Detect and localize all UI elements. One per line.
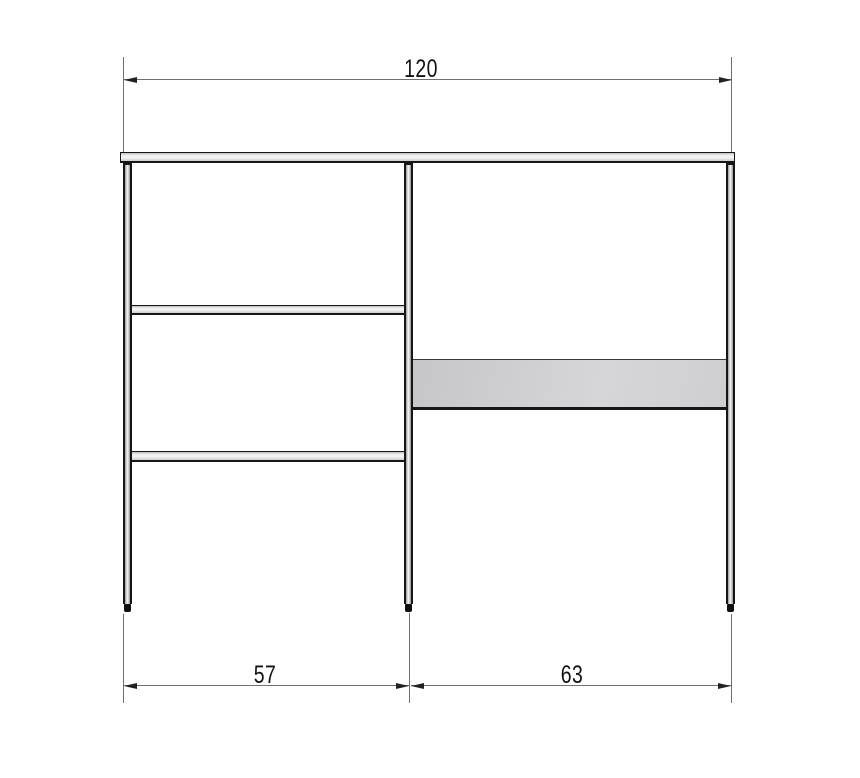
foot-middle — [405, 604, 412, 612]
extension-line-bottom-middle — [409, 613, 410, 703]
left-bay-lower-crossbar — [131, 451, 405, 462]
right-bay-panel — [413, 359, 726, 410]
arrowhead-right-icon — [718, 683, 731, 689]
dimension-label-overall-width: 120 — [374, 59, 468, 79]
arrowhead-left-icon — [411, 683, 424, 689]
arrowhead-left-icon — [124, 683, 137, 689]
left-bay-upper-crossbar — [131, 305, 405, 315]
dimension-label-right-bay: 63 — [525, 665, 619, 685]
extension-line-top-right — [731, 57, 732, 152]
dimension-label-left-bay: 57 — [218, 665, 312, 685]
foot-left — [124, 604, 131, 612]
extension-line-bottom-right — [731, 614, 732, 703]
arrowhead-left-icon — [124, 77, 137, 83]
extension-line-bottom-left — [123, 614, 124, 703]
arrowhead-right-icon — [719, 77, 732, 83]
arrowhead-right-icon — [396, 683, 409, 689]
tabletop — [120, 152, 735, 163]
post-right — [726, 163, 735, 604]
post-left — [123, 163, 132, 604]
dimension-drawing: 120 57 63 — [0, 0, 860, 778]
extension-line-top-left — [123, 57, 124, 152]
foot-right — [727, 604, 734, 612]
post-middle — [404, 163, 413, 604]
